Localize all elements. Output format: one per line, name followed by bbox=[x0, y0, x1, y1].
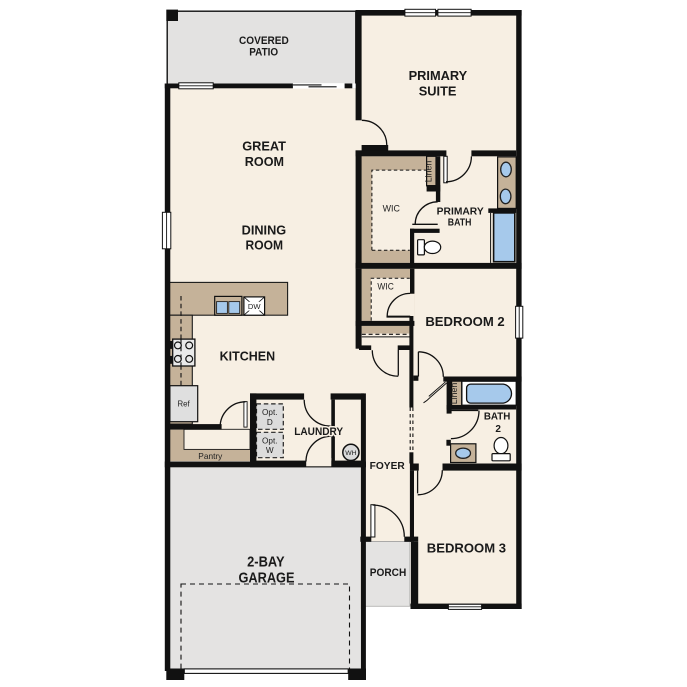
svg-text:GARAGE: GARAGE bbox=[239, 571, 295, 587]
svg-text:Opt.: Opt. bbox=[262, 436, 277, 445]
svg-text:Linen: Linen bbox=[449, 383, 459, 405]
svg-text:Linen: Linen bbox=[424, 161, 434, 183]
svg-text:BATH: BATH bbox=[448, 218, 472, 229]
svg-text:2: 2 bbox=[495, 424, 501, 435]
svg-text:GREAT: GREAT bbox=[242, 138, 286, 153]
svg-text:KITCHEN: KITCHEN bbox=[220, 348, 276, 363]
svg-text:DW: DW bbox=[248, 302, 261, 311]
svg-text:WH: WH bbox=[345, 450, 356, 457]
svg-text:PATIO: PATIO bbox=[249, 47, 278, 59]
svg-text:BEDROOM 2: BEDROOM 2 bbox=[425, 314, 504, 329]
svg-text:Ref: Ref bbox=[178, 400, 191, 409]
svg-text:W: W bbox=[266, 446, 274, 455]
svg-text:WIC: WIC bbox=[383, 203, 401, 213]
svg-text:SUITE: SUITE bbox=[419, 84, 457, 99]
svg-text:COVERED: COVERED bbox=[239, 35, 289, 47]
svg-text:PORCH: PORCH bbox=[370, 567, 407, 579]
svg-text:WIC: WIC bbox=[377, 282, 394, 292]
svg-text:PRIMARY: PRIMARY bbox=[437, 207, 484, 218]
svg-text:D: D bbox=[267, 418, 273, 427]
svg-text:ROOM: ROOM bbox=[246, 238, 284, 253]
svg-text:BEDROOM 3: BEDROOM 3 bbox=[427, 540, 506, 555]
svg-text:BATH: BATH bbox=[484, 412, 511, 423]
svg-text:Opt.: Opt. bbox=[262, 408, 277, 417]
svg-text:PRIMARY: PRIMARY bbox=[409, 68, 468, 83]
svg-text:FOYER: FOYER bbox=[370, 461, 406, 472]
svg-text:DINING: DINING bbox=[242, 222, 287, 237]
svg-text:ROOM: ROOM bbox=[245, 154, 284, 169]
svg-text:LAUNDRY: LAUNDRY bbox=[294, 426, 343, 438]
svg-text:Pantry: Pantry bbox=[198, 451, 223, 461]
svg-text:2-BAY: 2-BAY bbox=[247, 555, 285, 571]
